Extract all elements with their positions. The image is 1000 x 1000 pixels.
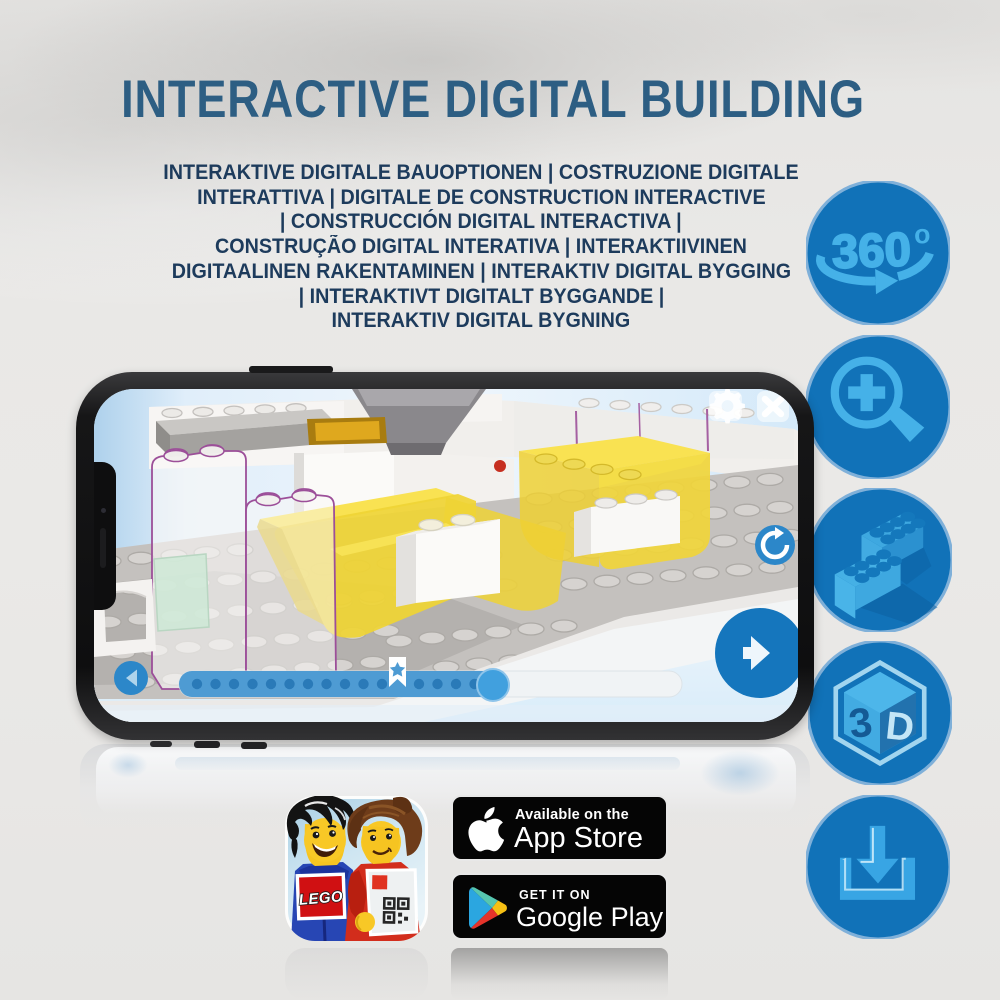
- svg-text:360: 360: [831, 223, 912, 279]
- svg-text:o: o: [914, 219, 931, 250]
- svg-text:D: D: [884, 704, 917, 750]
